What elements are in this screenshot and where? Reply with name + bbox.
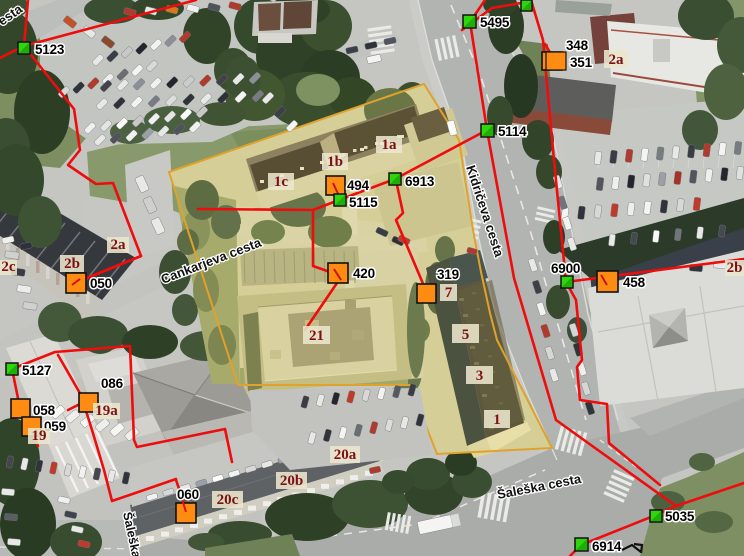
svg-text:2a: 2a bbox=[111, 237, 127, 253]
svg-text:19: 19 bbox=[32, 428, 47, 444]
svg-text:6914: 6914 bbox=[592, 539, 622, 554]
svg-text:1c: 1c bbox=[274, 174, 289, 190]
svg-text:494: 494 bbox=[347, 178, 370, 193]
svg-text:319: 319 bbox=[437, 267, 459, 282]
svg-text:21: 21 bbox=[309, 328, 324, 344]
svg-text:20c: 20c bbox=[217, 492, 239, 508]
svg-text:060: 060 bbox=[177, 487, 199, 502]
svg-text:6900: 6900 bbox=[551, 261, 580, 276]
svg-text:20a: 20a bbox=[334, 447, 357, 463]
svg-text:5: 5 bbox=[462, 327, 470, 343]
svg-text:2b: 2b bbox=[727, 260, 743, 276]
svg-text:20b: 20b bbox=[280, 473, 303, 489]
svg-text:1: 1 bbox=[493, 412, 501, 428]
svg-text:351: 351 bbox=[570, 55, 593, 70]
svg-text:7: 7 bbox=[445, 285, 453, 301]
svg-text:6913: 6913 bbox=[405, 174, 435, 189]
svg-text:5115: 5115 bbox=[349, 195, 378, 210]
svg-text:1a: 1a bbox=[382, 137, 398, 153]
svg-text:5035: 5035 bbox=[665, 509, 695, 524]
svg-text:058: 058 bbox=[33, 403, 56, 418]
svg-text:2b: 2b bbox=[64, 256, 80, 272]
svg-text:5127: 5127 bbox=[22, 363, 51, 378]
svg-text:348: 348 bbox=[566, 38, 589, 53]
svg-text:458: 458 bbox=[623, 275, 646, 290]
svg-text:19a: 19a bbox=[95, 403, 118, 419]
svg-text:5114: 5114 bbox=[498, 124, 527, 139]
svg-text:3: 3 bbox=[476, 368, 484, 384]
svg-text:5123: 5123 bbox=[35, 42, 65, 57]
svg-text:1b: 1b bbox=[327, 154, 343, 170]
svg-text:420: 420 bbox=[353, 266, 375, 281]
svg-text:2a: 2a bbox=[609, 52, 625, 68]
svg-text:086: 086 bbox=[101, 376, 124, 391]
svg-text:5495: 5495 bbox=[480, 15, 510, 30]
svg-text:050: 050 bbox=[90, 276, 112, 291]
svg-text:2c: 2c bbox=[1, 259, 16, 275]
